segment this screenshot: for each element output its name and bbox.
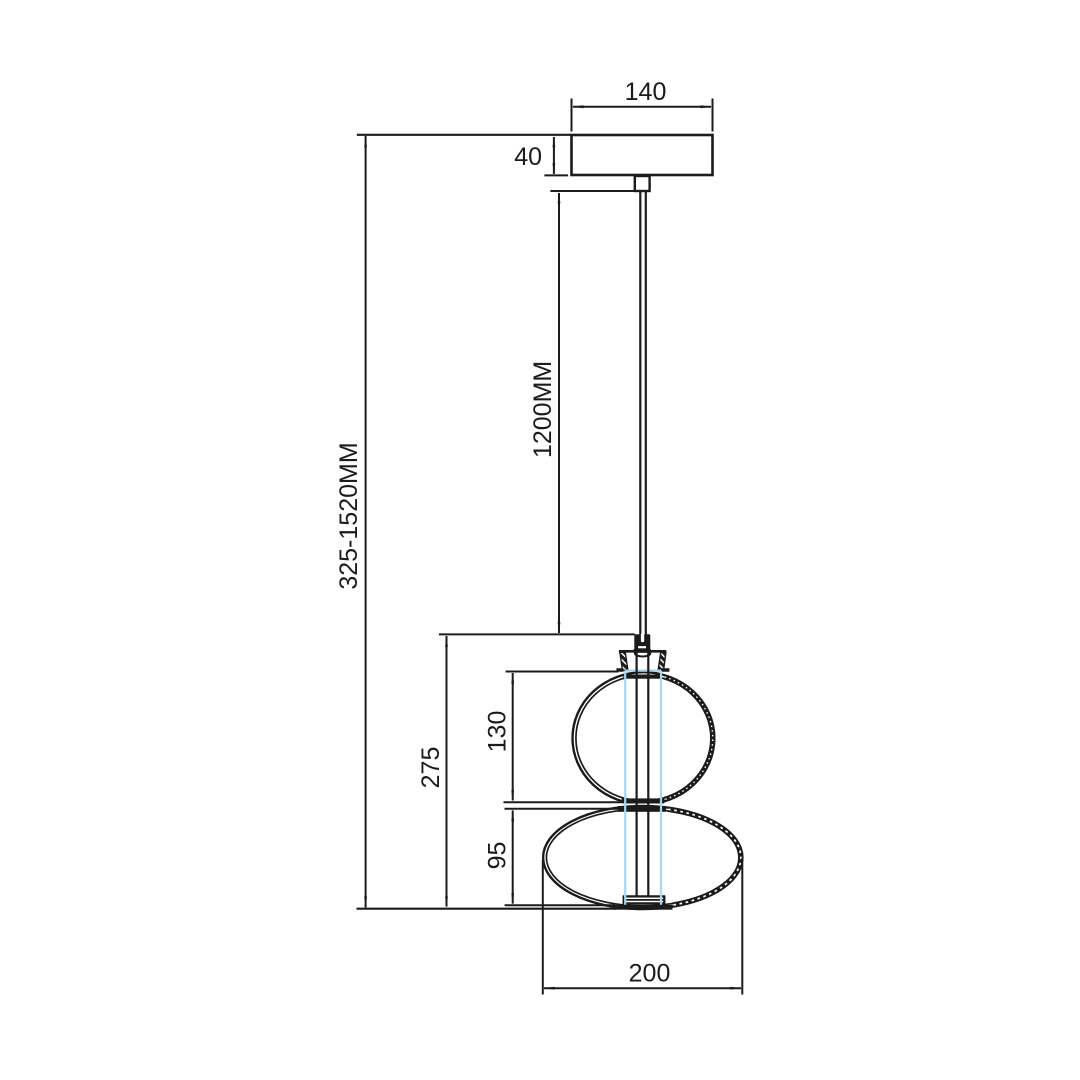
svg-text:130: 130 [483,711,511,753]
svg-text:40: 40 [514,143,542,171]
svg-text:1200MM: 1200MM [529,361,557,458]
svg-text:275: 275 [417,747,445,789]
svg-text:95: 95 [483,842,511,870]
svg-text:325-1520MM: 325-1520MM [335,442,363,589]
svg-text:140: 140 [625,78,667,106]
svg-text:200: 200 [629,960,671,988]
